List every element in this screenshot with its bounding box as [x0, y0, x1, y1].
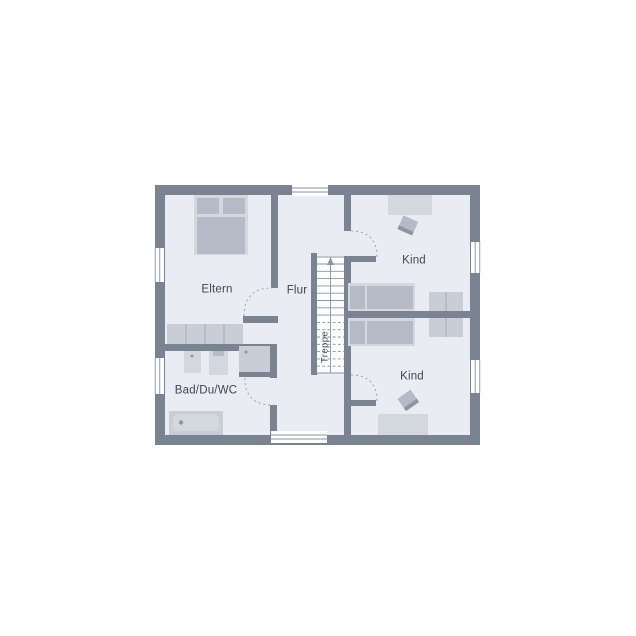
double-bed: [194, 195, 248, 255]
window-left-upper: [151, 248, 164, 282]
window-top: [292, 184, 328, 196]
wardrobe: [167, 324, 243, 344]
wall-shower-enclosure: [239, 372, 271, 377]
cabinet: [429, 318, 463, 337]
wall-bad-flur-upper: [270, 344, 277, 378]
mattress: [197, 217, 245, 254]
wall-flur-kind-top: [344, 195, 351, 231]
shower: [239, 346, 270, 372]
wall-stairwell-left: [311, 253, 317, 375]
washbasin: [184, 351, 201, 373]
single-bed: [348, 318, 415, 346]
room-label-flur: Flur: [287, 285, 308, 297]
room-label-kind-bottom: Kind: [400, 371, 424, 383]
cabinet: [429, 292, 463, 311]
window-bottom: [271, 431, 327, 443]
room-label-eltern: Eltern: [201, 284, 232, 296]
floor-plan-canvas: [0, 0, 636, 636]
single-bed: [348, 283, 415, 311]
pillow: [197, 198, 219, 214]
room-label-kind-top: Kind: [402, 255, 426, 267]
pillow: [223, 198, 245, 214]
desk: [378, 414, 428, 435]
window-left-lower: [151, 358, 164, 394]
bathtub: [169, 411, 223, 435]
mattress: [367, 321, 413, 344]
wall-eltern-door-stub: [243, 316, 278, 323]
wall-bad-flur-lower: [270, 405, 277, 435]
desk: [388, 195, 432, 215]
toilet: [209, 351, 228, 375]
wall-flur-kind-bottom: [344, 400, 351, 435]
window-right-upper: [471, 242, 484, 273]
wall-eltern-flur: [271, 195, 278, 288]
window-right-lower: [471, 360, 484, 393]
room-label-bad: Bad/Du/WC: [175, 385, 238, 397]
mattress: [367, 286, 413, 309]
wall-kind-kind: [351, 311, 470, 318]
floor-plan: Eltern Flur Kind Kind Bad/Du/WC Treppe: [0, 0, 636, 636]
pillow: [350, 286, 365, 309]
room-label-treppe: Treppe: [320, 331, 330, 363]
pillow: [350, 321, 365, 344]
